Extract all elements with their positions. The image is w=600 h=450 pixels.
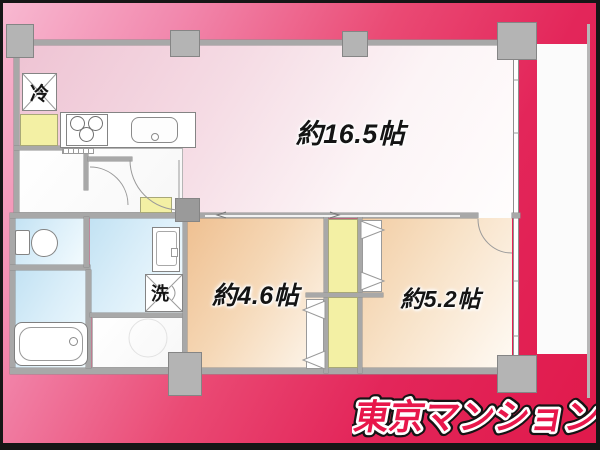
slider-arrow [330, 212, 339, 218]
door-arc [90, 167, 128, 205]
frame-border [596, 0, 600, 450]
door-arc [478, 219, 512, 253]
brand-logo: 東京マンション 東京マンション 東京マンション [352, 388, 598, 444]
brand-logo-text: 東京マンション [352, 397, 598, 437]
floor-plan-canvas: 約16.5帖 約4.6帖 約5.2帖 冷 洗 東京マンション 東京マンション 東… [0, 0, 600, 450]
refrigerator-label: 冷 [22, 73, 57, 111]
room-label-bedroom-b: 約5.2帖 [368, 281, 513, 313]
frame-border [0, 0, 600, 3]
entry-door-arc [129, 319, 167, 357]
frame-border [0, 443, 600, 450]
closet-door-marker [303, 351, 325, 369]
door-arc [130, 160, 180, 210]
closet-door-marker [361, 221, 384, 239]
frame-border [0, 0, 3, 450]
linework-overlay [0, 0, 600, 450]
room-label-ldk: 約16.5帖 [268, 112, 433, 150]
room-label-bedroom-a: 約4.6帖 [183, 277, 328, 311]
slider-arrow [217, 212, 226, 218]
washing-machine-label: 洗 [143, 274, 177, 312]
